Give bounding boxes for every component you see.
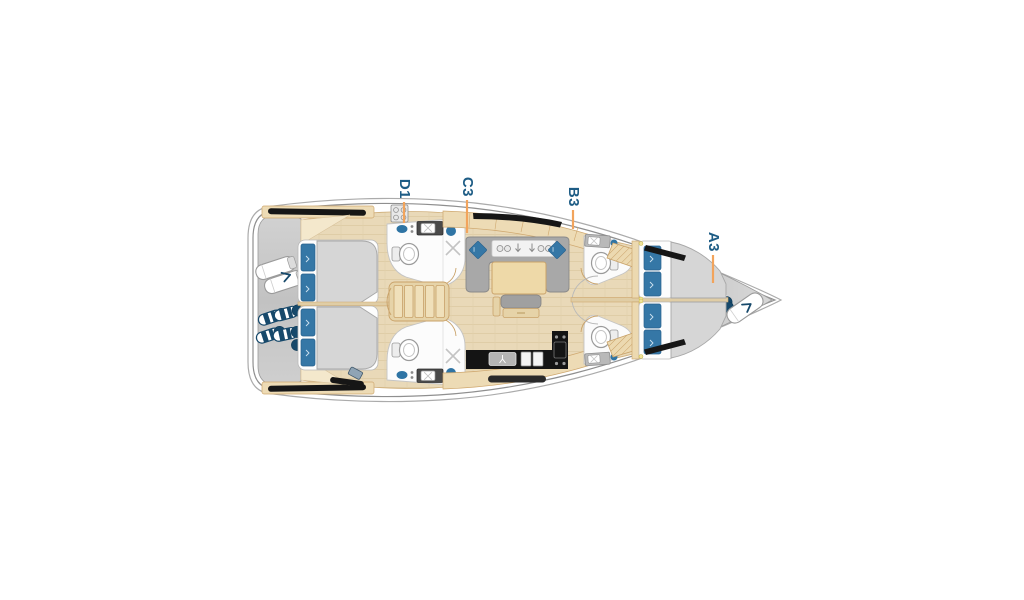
tap-dot — [411, 376, 414, 379]
sink-basin-blue — [397, 225, 408, 233]
deck-plan-canvas: D1 C3 B3 A3 — [0, 0, 1024, 600]
step-treads — [394, 286, 445, 318]
stove-pan-1 — [521, 352, 531, 366]
cabin-label-C3[interactable]: C3 — [459, 177, 476, 197]
saloon-bench-arm — [493, 297, 500, 316]
bed-frame-trim-port — [632, 241, 639, 298]
toilet-icon — [392, 244, 419, 265]
stove-pan-2 — [533, 352, 543, 366]
cabin-label-B3[interactable]: B3 — [565, 187, 582, 207]
bed-mattress-aft-port — [317, 241, 377, 303]
toilet-icon — [392, 340, 419, 361]
saloon-table — [492, 262, 546, 294]
hull-window-galley — [488, 376, 546, 383]
saloon-bench-seat — [501, 295, 541, 308]
companionway-steps — [387, 282, 449, 321]
bed-mattress-aft-starboard — [317, 307, 377, 369]
aft-cabins-divider-wall — [298, 302, 390, 306]
sink-basin-blue — [397, 371, 408, 379]
cabin-label-A3[interactable]: A3 — [705, 232, 722, 252]
bed-frame-trim-starboard — [632, 302, 639, 359]
cabin-label-D1[interactable]: D1 — [396, 179, 413, 199]
yacht-deck-plan: D1 C3 B3 A3 — [0, 0, 1024, 600]
tap-dot — [411, 230, 414, 233]
stern-deck — [258, 214, 301, 387]
tap-dot — [411, 371, 414, 374]
bed-mattress-fwd-starboard — [671, 302, 726, 358]
tap-dot — [411, 225, 414, 228]
